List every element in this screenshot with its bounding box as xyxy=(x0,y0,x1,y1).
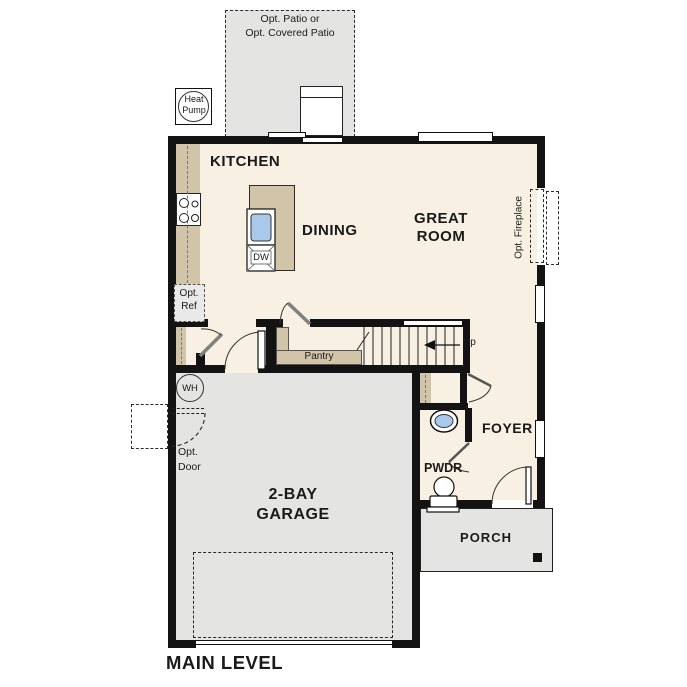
floor-plan: WH xyxy=(0,0,687,687)
stairs xyxy=(364,327,454,365)
garage-label-line1: 2-BAY xyxy=(268,486,317,504)
cooktop-icon xyxy=(180,199,199,223)
kitchen-label: KITCHEN xyxy=(210,153,280,170)
great-room-label-line1: GREAT xyxy=(414,210,468,227)
opt-door-label-line2: Door xyxy=(178,461,201,473)
hall-door-1 xyxy=(200,329,222,356)
dining-label: DINING xyxy=(302,222,358,239)
dishwasher-label: DW xyxy=(253,253,269,264)
opt-fireplace-label: Opt. Fireplace xyxy=(514,183,527,273)
powder-sink-icon xyxy=(431,410,458,432)
pantry-label: Pantry xyxy=(305,351,334,363)
front-door xyxy=(492,467,531,504)
heat-pump-label-line2: Pump xyxy=(182,105,206,115)
toilet-icon xyxy=(427,477,459,512)
up-label: Up xyxy=(463,337,476,349)
opt-ref-label-line1: Opt. xyxy=(180,288,199,300)
heat-pump-label-line1: Heat xyxy=(184,94,203,104)
stair-break-line xyxy=(357,332,369,350)
opt-ref-label-line2: Ref xyxy=(181,301,197,313)
main-level-title: MAIN LEVEL xyxy=(166,652,283,673)
garage-entry-door xyxy=(225,331,265,369)
kitchen-sink-icon xyxy=(247,209,275,245)
opt-door-swing xyxy=(172,413,205,446)
coat-closet-door xyxy=(468,374,491,402)
porch-label: PORCH xyxy=(460,531,512,546)
great-room-label-line2: ROOM xyxy=(417,228,466,245)
foyer-label: FOYER xyxy=(482,420,533,436)
opt-door-label-line1: Opt. xyxy=(178,446,198,458)
up-arrow-icon xyxy=(424,340,460,350)
pantry-door xyxy=(280,303,310,324)
powder-label: PWDR xyxy=(424,461,462,475)
plan-detail-layer xyxy=(0,0,687,687)
patio-label-line2: Opt. Covered Patio xyxy=(245,27,334,39)
garage-label-line2: GARAGE xyxy=(256,506,329,524)
patio-label-line1: Opt. Patio or xyxy=(261,13,320,25)
